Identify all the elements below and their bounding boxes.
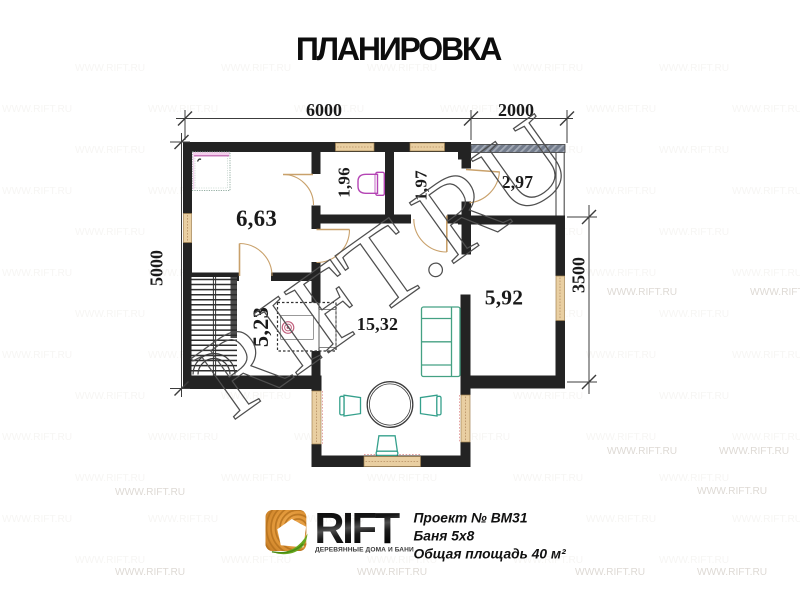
svg-text:5000: 5000 [147,250,167,286]
svg-text:RIFT: RIFT [315,504,401,552]
svg-text:WWW.RIFT.RU: WWW.RIFT.RU [607,287,677,298]
svg-text:1,96: 1,96 [335,167,354,198]
svg-text:WWW.RIFT.RU: WWW.RIFT.RU [719,446,789,457]
svg-text:Общая площадь 40 м²: Общая площадь 40 м² [414,546,567,561]
svg-text:5,92: 5,92 [485,286,523,310]
svg-text:WWW.RIFT.RU: WWW.RIFT.RU [115,487,185,498]
svg-text:WWW.RIFT.RU: WWW.RIFT.RU [697,486,767,497]
svg-text:ДЕРЕВЯННЫЕ ДОМА И БАНИ: ДЕРЕВЯННЫЕ ДОМА И БАНИ [315,547,414,554]
svg-text:WWW.RIFT.RU: WWW.RIFT.RU [575,567,645,578]
svg-text:WWW.RIFT.RU: WWW.RIFT.RU [750,287,800,298]
svg-text:WWW.RIFT.RU: WWW.RIFT.RU [115,567,185,578]
svg-text:3500: 3500 [569,257,589,293]
svg-text:ПЛАНИРОВКА: ПЛАНИРОВКА [296,31,502,67]
svg-text:Проект № ВМ31: Проект № ВМ31 [414,510,528,525]
svg-text:Баня 5х8: Баня 5х8 [414,528,475,543]
svg-text:6,63: 6,63 [236,206,277,231]
svg-text:WWW.RIFT.RU: WWW.RIFT.RU [607,446,677,457]
svg-text:WWW.RIFT.RU: WWW.RIFT.RU [357,567,427,578]
svg-text:6000: 6000 [306,100,342,120]
svg-text:WWW.RIFT.RU: WWW.RIFT.RU [697,567,767,578]
